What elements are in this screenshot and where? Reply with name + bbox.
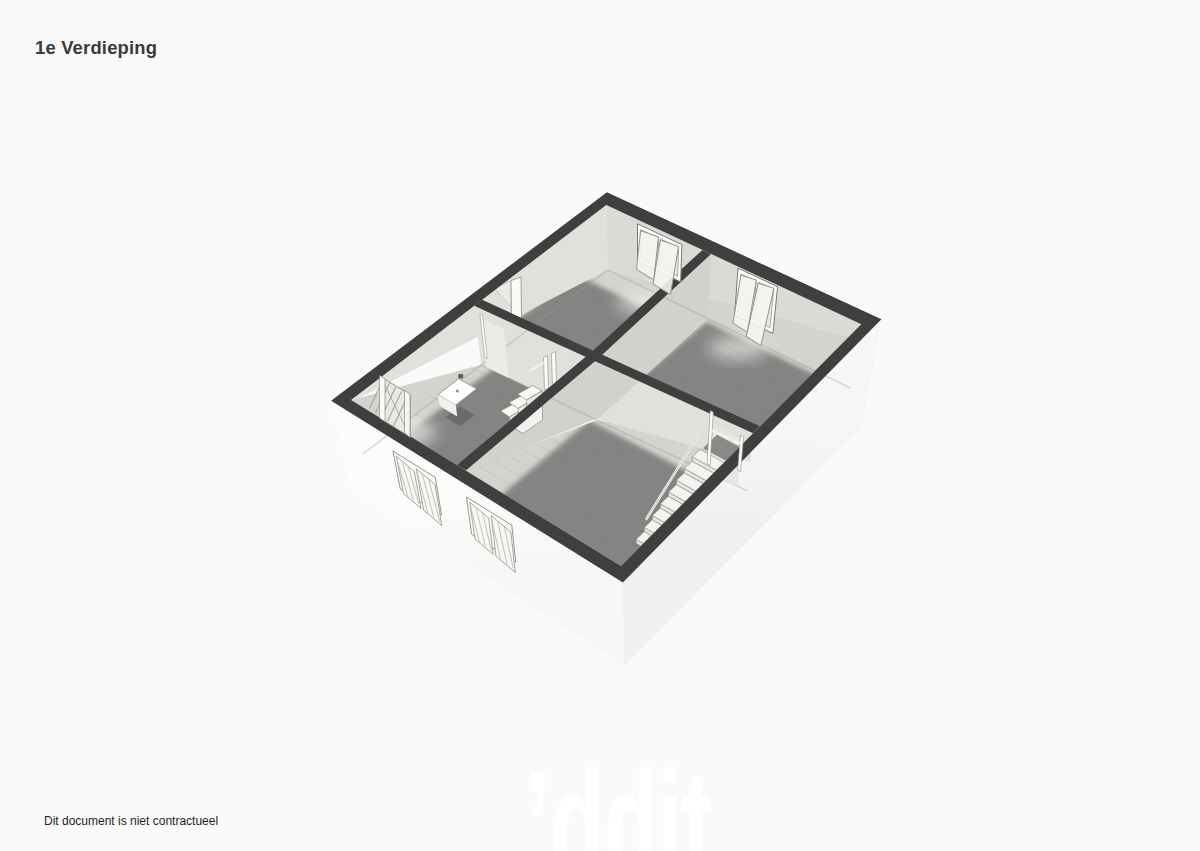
svg-text:’ddit.: ’ddit. (526, 741, 736, 851)
